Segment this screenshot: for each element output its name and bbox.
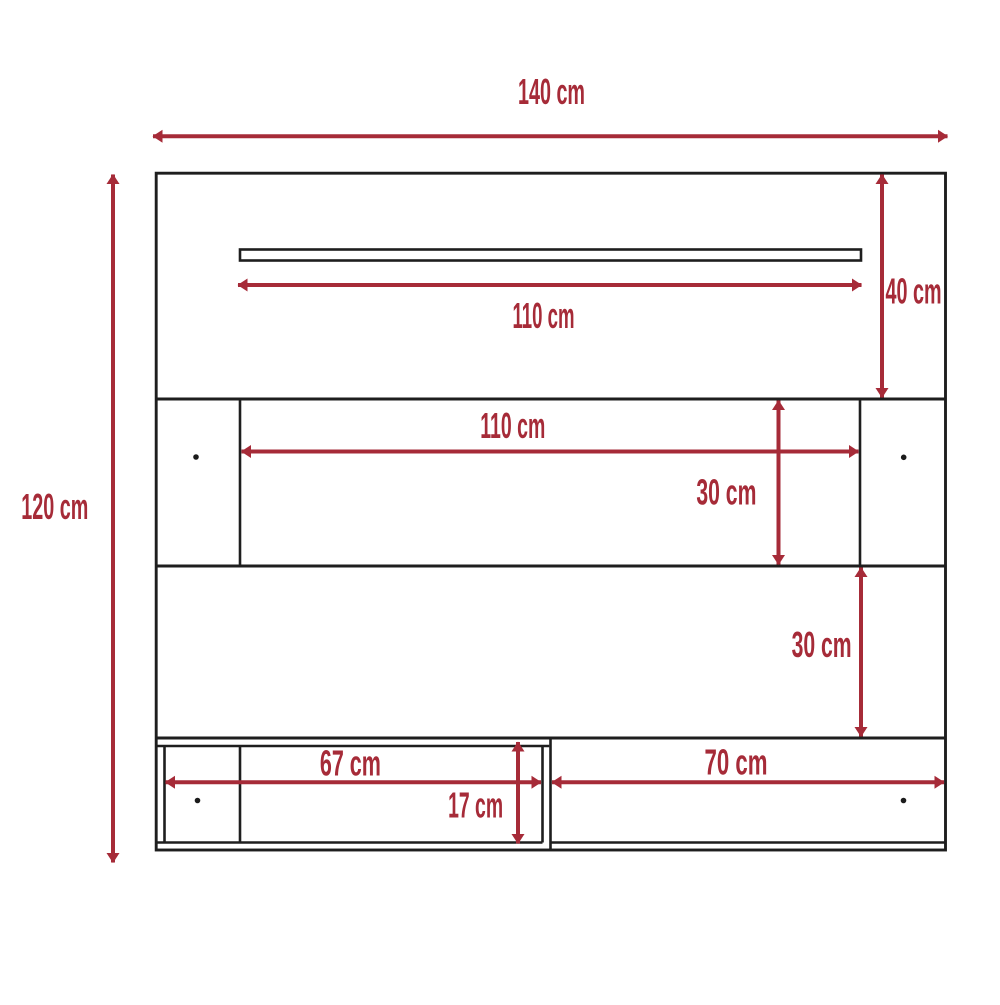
svg-text:140 cm: 140 cm	[518, 71, 585, 112]
svg-text:110 cm: 110 cm	[513, 295, 575, 336]
svg-text:120 cm: 120 cm	[21, 486, 88, 527]
svg-text:30 cm: 30 cm	[792, 624, 852, 665]
svg-text:30 cm: 30 cm	[696, 472, 756, 513]
svg-text:40 cm: 40 cm	[886, 270, 942, 311]
svg-text:17 cm: 17 cm	[448, 785, 503, 826]
svg-text:110 cm: 110 cm	[480, 405, 545, 446]
svg-text:70 cm: 70 cm	[705, 741, 768, 782]
svg-text:67 cm: 67 cm	[320, 743, 381, 784]
